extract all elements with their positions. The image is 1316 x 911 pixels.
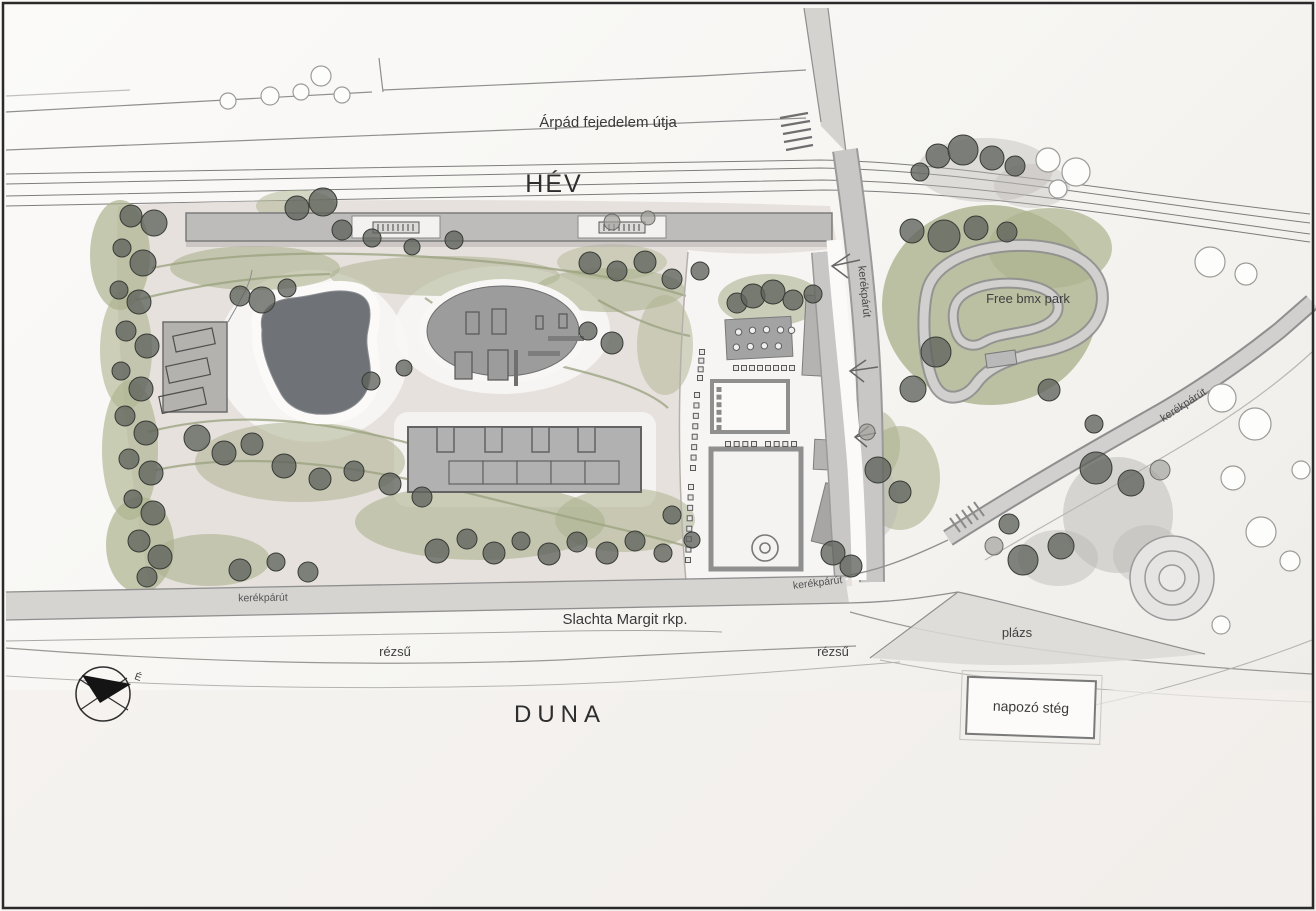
tree-icon (212, 441, 236, 465)
tree-icon (1048, 533, 1074, 559)
tree-outline-icon (1280, 551, 1300, 571)
tree-icon (1005, 156, 1025, 176)
bollard-icon (686, 558, 691, 563)
tree-icon (128, 530, 150, 552)
tree-outline-icon (334, 87, 350, 103)
tree-icon (1038, 379, 1060, 401)
tree-icon (129, 377, 153, 401)
tree-icon (641, 211, 655, 225)
tree-outline-icon (1062, 158, 1090, 186)
bollard-icon (691, 466, 696, 471)
tree-icon (184, 425, 210, 451)
tree-icon (134, 421, 158, 445)
tree-outline-icon (1292, 461, 1310, 479)
tree-icon (483, 542, 505, 564)
bollard-icon (687, 516, 692, 521)
embankment-label-left: rézsű (379, 644, 411, 659)
tree-icon (662, 269, 682, 289)
bollard-icon (792, 442, 797, 447)
river-label: DUNA (514, 701, 606, 728)
circular-plaza (1130, 536, 1214, 620)
planting-dot-icon (763, 326, 770, 333)
pond (261, 291, 370, 414)
tree-icon (285, 196, 309, 220)
tree-icon (921, 337, 951, 367)
tree-outline-icon (1212, 616, 1230, 634)
tree-icon (579, 252, 601, 274)
tree-icon (900, 219, 924, 243)
site-plan: Árpád fejedelem útja HÉV Free bmx park k… (0, 0, 1316, 911)
tree-outline-icon (1221, 466, 1245, 490)
tree-icon (634, 251, 656, 273)
central-building (408, 427, 641, 492)
tree-icon (148, 545, 172, 569)
tree-icon (127, 290, 151, 314)
embankment-label-right: rézsű (817, 644, 849, 659)
tree-icon (457, 529, 477, 549)
tree-icon (130, 250, 156, 276)
tree-icon (1008, 545, 1038, 575)
tree-icon (964, 216, 988, 240)
bollard-icon (743, 442, 748, 447)
top-street-road (6, 58, 806, 150)
tree-icon (538, 543, 560, 565)
planting-dot-icon (735, 329, 742, 336)
tree-icon (278, 279, 296, 297)
tree-outline-icon (1239, 408, 1271, 440)
tree-icon (601, 332, 623, 354)
planting-dot-icon (775, 343, 782, 350)
tree-icon (691, 262, 709, 280)
tree-icon (1150, 460, 1170, 480)
left-building (159, 322, 227, 413)
tree-grid-pad (725, 316, 796, 360)
tree-icon (663, 506, 681, 524)
compass-north-label: É (133, 669, 144, 684)
tree-icon (948, 135, 978, 165)
tree-outline-icon (220, 93, 236, 109)
bollard-icon (691, 455, 696, 460)
tree-icon (110, 281, 128, 299)
tree-icon (804, 285, 822, 303)
north-access-road (780, 8, 846, 152)
bollard-icon (774, 442, 779, 447)
tree-icon (362, 372, 380, 390)
tree-icon (567, 532, 587, 552)
bollard-icon (687, 526, 692, 531)
tree-outline-icon (293, 84, 309, 100)
rail-label-hev: HÉV (525, 169, 582, 198)
tree-icon (985, 537, 1003, 555)
bollard-icon (734, 442, 739, 447)
tree-icon (135, 334, 159, 358)
tree-icon (997, 222, 1017, 242)
tree-icon (865, 457, 891, 483)
tree-icon (119, 449, 139, 469)
tree-outline-icon (1049, 180, 1067, 198)
tree-icon (141, 210, 167, 236)
tree-icon (625, 531, 645, 551)
tree-icon (579, 322, 597, 340)
stall-icon (717, 425, 722, 430)
tree-icon (137, 567, 157, 587)
tree-icon (113, 239, 131, 257)
beach-label: plázs (1002, 625, 1033, 640)
tree-icon (926, 144, 950, 168)
tree-icon (124, 490, 142, 508)
hev-platform (186, 213, 832, 247)
tree-icon (363, 229, 381, 247)
planting-dot-icon (749, 327, 756, 334)
tree-icon (1080, 452, 1112, 484)
bollard-icon (693, 424, 698, 429)
site-plan-canvas: Árpád fejedelem útja HÉV Free bmx park k… (0, 0, 1316, 911)
bollard-icon (695, 393, 700, 398)
tree-icon (684, 532, 700, 548)
street-label-arpad: Árpád fejedelem útja (539, 114, 677, 131)
bollard-icon (689, 485, 694, 490)
tree-icon (115, 406, 135, 426)
bollard-icon (694, 403, 699, 408)
tree-icon (112, 362, 130, 380)
stall-icon (717, 417, 722, 422)
tree-outline-icon (261, 87, 279, 105)
tree-outline-icon (1036, 148, 1060, 172)
tree-outline-icon (1246, 517, 1276, 547)
tree-icon (654, 544, 672, 562)
tree-icon (272, 454, 296, 478)
tree-icon (596, 542, 618, 564)
stall-icon (717, 410, 722, 415)
bollard-icon (698, 376, 703, 381)
bollard-icon (742, 366, 747, 371)
tree-icon (1118, 470, 1144, 496)
bollard-icon (774, 366, 779, 371)
sun-deck-label: napozó stég (993, 698, 1070, 717)
tree-icon (249, 287, 275, 313)
tree-icon (859, 424, 875, 440)
bollard-icon (692, 445, 697, 450)
tree-icon (141, 501, 165, 525)
bike-path-label-quay-left: kerékpárút (238, 592, 288, 605)
pavilion-lower (711, 449, 801, 569)
tree-icon (928, 220, 960, 252)
lawn-patch (637, 295, 693, 395)
tree-icon (230, 286, 250, 306)
tree-icon (761, 280, 785, 304)
tree-icon (412, 487, 432, 507)
tree-icon (911, 163, 929, 181)
river-area (4, 690, 1312, 907)
planting-dot-icon (733, 344, 740, 351)
tree-icon (999, 514, 1019, 534)
tree-outline-icon (311, 66, 331, 86)
tree-icon (1085, 415, 1103, 433)
tree-icon (309, 188, 337, 216)
bollard-icon (750, 366, 755, 371)
bollard-icon (693, 413, 698, 418)
tree-icon (116, 321, 136, 341)
bmx-park-label: Free bmx park (986, 291, 1070, 306)
tree-icon (404, 239, 420, 255)
bollard-icon (782, 366, 787, 371)
tree-icon (889, 481, 911, 503)
bollard-icon (688, 495, 693, 500)
tree-icon (980, 146, 1004, 170)
tree-icon (840, 555, 862, 577)
stall-icon (717, 387, 722, 392)
bollard-icon (766, 366, 771, 371)
quay-label: Slachta Margit rkp. (562, 611, 687, 628)
planting-dot-icon (777, 327, 784, 334)
bollard-icon (766, 442, 771, 447)
tree-icon (900, 376, 926, 402)
tree-outline-icon (1195, 247, 1225, 277)
tree-icon (298, 562, 318, 582)
tree-icon (425, 539, 449, 563)
bollard-icon (688, 505, 693, 510)
bollard-icon (700, 350, 705, 355)
bollard-icon (692, 434, 697, 439)
tree-icon (344, 461, 364, 481)
bollard-icon (734, 366, 739, 371)
bollard-icon (790, 366, 795, 371)
tree-icon (139, 461, 163, 485)
bollard-icon (699, 358, 704, 363)
tree-outline-icon (1208, 384, 1236, 412)
planting-dot-icon (747, 343, 754, 350)
bollard-icon (698, 367, 703, 372)
tree-icon (512, 532, 530, 550)
tree-icon (604, 214, 620, 230)
stall-icon (717, 402, 722, 407)
tree-icon (607, 261, 627, 281)
tree-icon (241, 433, 263, 455)
pavilion-upper (712, 381, 788, 432)
tree-icon (309, 468, 331, 490)
tree-icon (445, 231, 463, 249)
tree-icon (396, 360, 412, 376)
tree-icon (332, 220, 352, 240)
fountain-icon (760, 543, 770, 553)
tree-outline-icon (1235, 263, 1257, 285)
tree-icon (783, 290, 803, 310)
planting-dot-icon (761, 342, 768, 349)
bollard-icon (783, 442, 788, 447)
bollard-icon (726, 442, 731, 447)
tree-icon (229, 559, 251, 581)
tree-icon (379, 473, 401, 495)
bollard-icon (752, 442, 757, 447)
bollard-icon (758, 366, 763, 371)
tree-icon (267, 553, 285, 571)
planting-dot-icon (788, 327, 795, 334)
stall-icon (717, 395, 722, 400)
tree-icon (120, 205, 142, 227)
